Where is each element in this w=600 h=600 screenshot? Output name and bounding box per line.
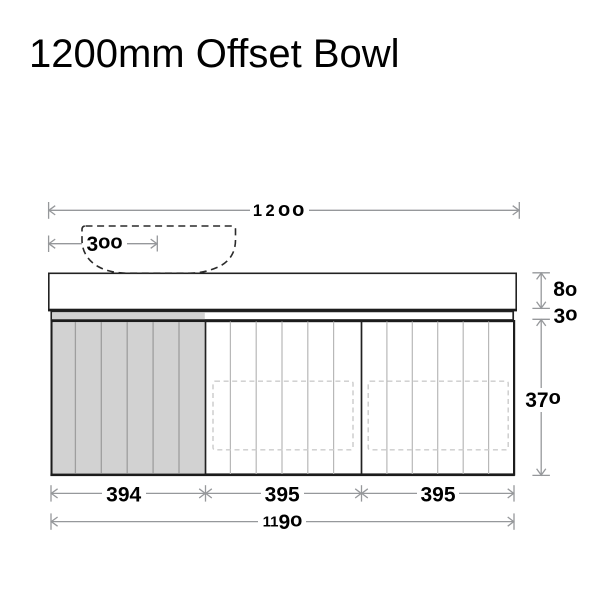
svg-text:395: 395	[265, 484, 300, 507]
svg-text:3oo: 3oo	[86, 231, 122, 256]
svg-text:394: 394	[106, 484, 141, 507]
svg-text:3o: 3o	[554, 303, 578, 328]
svg-text:12oo: 12oo	[253, 199, 306, 221]
svg-text:37o: 37o	[525, 387, 561, 412]
svg-text:395: 395	[420, 484, 455, 507]
svg-text:1200mm Offset Bowl: 1200mm Offset Bowl	[29, 32, 400, 76]
svg-text:8o: 8o	[553, 278, 577, 301]
